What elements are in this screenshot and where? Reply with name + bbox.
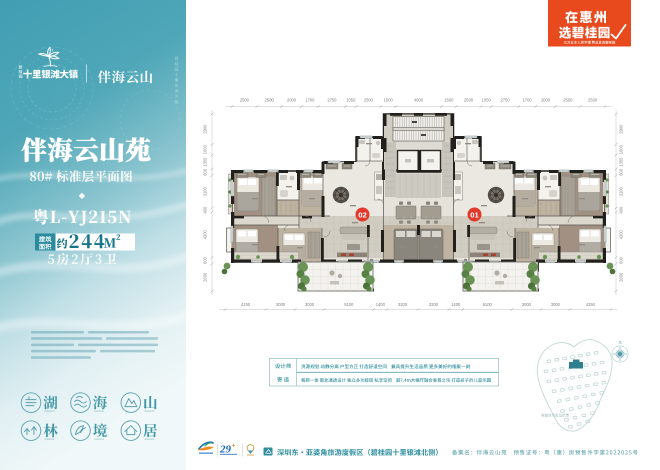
svg-text:1500: 1500 xyxy=(384,98,394,103)
svg-text:01: 01 xyxy=(470,210,479,219)
svg-text:1700: 1700 xyxy=(305,98,315,103)
svg-text:3200: 3200 xyxy=(398,302,408,307)
svg-text:2600: 2600 xyxy=(203,272,208,282)
svg-text:2750: 2750 xyxy=(501,98,511,103)
svg-text:600: 600 xyxy=(619,168,624,176)
svg-text:2900: 2900 xyxy=(203,124,208,134)
svg-text:3000: 3000 xyxy=(551,302,561,307)
svg-text:2500: 2500 xyxy=(265,98,275,103)
svg-text:3100: 3100 xyxy=(619,186,624,196)
svg-text:5100: 5100 xyxy=(344,302,354,307)
svg-text:1000: 1000 xyxy=(203,144,208,154)
svg-text:+: + xyxy=(232,443,236,450)
svg-text:400: 400 xyxy=(619,206,624,214)
svg-text:600: 600 xyxy=(203,168,208,176)
svg-text:1400: 1400 xyxy=(451,302,461,307)
svg-text:1400: 1400 xyxy=(376,302,386,307)
svg-text:2500: 2500 xyxy=(364,98,374,103)
svg-text:2000: 2000 xyxy=(541,98,551,103)
svg-text:4300: 4300 xyxy=(203,230,208,240)
svg-text:02: 02 xyxy=(358,210,366,219)
svg-text:2500: 2500 xyxy=(464,98,474,103)
svg-text:29: 29 xyxy=(219,444,232,456)
svg-text:2500: 2500 xyxy=(240,98,250,103)
svg-text:1050: 1050 xyxy=(346,98,356,103)
svg-text:1000: 1000 xyxy=(619,144,624,154)
svg-text:3100: 3100 xyxy=(203,186,208,196)
svg-text:2600: 2600 xyxy=(619,272,624,282)
svg-text:1700: 1700 xyxy=(523,98,533,103)
svg-text:600: 600 xyxy=(203,256,208,264)
svg-text:2000: 2000 xyxy=(287,98,297,103)
svg-text:4250: 4250 xyxy=(241,302,251,307)
svg-text:400: 400 xyxy=(203,206,208,214)
svg-text:2500: 2500 xyxy=(563,98,573,103)
svg-text:3000: 3000 xyxy=(276,302,286,307)
svg-text:3200: 3200 xyxy=(429,302,439,307)
svg-text:3000: 3000 xyxy=(522,302,532,307)
svg-text:4250: 4250 xyxy=(586,302,596,307)
svg-text:2750: 2750 xyxy=(327,98,337,103)
svg-text:1350: 1350 xyxy=(619,157,624,167)
svg-text:4300: 4300 xyxy=(619,230,624,240)
svg-text:1350: 1350 xyxy=(203,157,208,167)
svg-text:1500: 1500 xyxy=(444,98,454,103)
svg-text:3000: 3000 xyxy=(305,302,315,307)
svg-text:1050: 1050 xyxy=(482,98,492,103)
svg-text:4600: 4600 xyxy=(414,98,424,103)
svg-text:600: 600 xyxy=(619,256,624,264)
svg-text:2500: 2500 xyxy=(588,98,598,103)
svg-text:5100: 5100 xyxy=(483,302,493,307)
svg-text:2900: 2900 xyxy=(619,124,624,134)
